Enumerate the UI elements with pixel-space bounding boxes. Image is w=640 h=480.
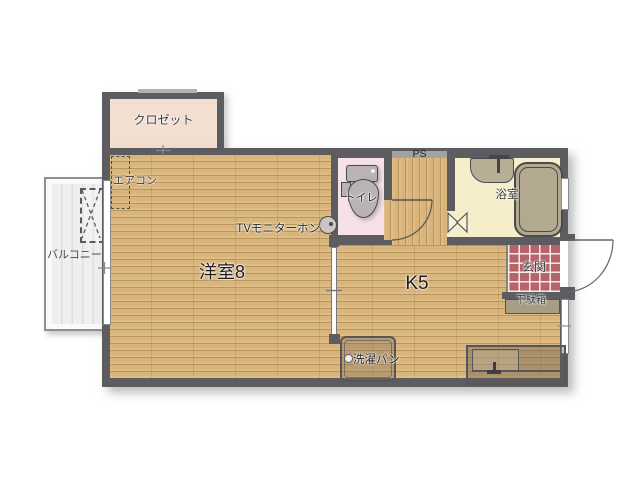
floor-plan: クロゼット エアコン バルコニー 洋室8 TVモニターホン トイレ PS 浴室 … <box>0 0 640 480</box>
kitchen-counter-front-line <box>472 370 564 372</box>
toilet-label: トイレ <box>338 189 384 205</box>
bathroom-label: 浴室 <box>477 186 537 202</box>
hallway-floor <box>392 158 447 245</box>
closet-label: クロゼット <box>110 111 217 128</box>
kitchen-faucet-base <box>487 370 501 374</box>
sink-faucet-stem <box>497 159 500 173</box>
balcony-label: バルコニー <box>47 246 102 262</box>
laundry-faucet-dot <box>344 354 353 363</box>
shoe-cabinet-label: 下駄箱 <box>502 291 560 306</box>
toilet-door-opening <box>384 200 392 240</box>
closet-window-bar <box>138 89 197 93</box>
toilet-tank-button <box>371 169 375 173</box>
pipe-space-label: PS <box>392 148 447 160</box>
bathroom-window <box>561 178 569 210</box>
entrance-label: 玄関 <box>508 258 560 275</box>
partition-stub-top <box>329 235 339 247</box>
kitchen-label: K5 <box>387 273 447 295</box>
aircon-label: エアコン <box>113 172 157 188</box>
entry-door-jamb-top <box>560 234 575 241</box>
western-room-label: 洋室8 <box>172 258 272 284</box>
intercom-label: TVモニターホン <box>222 220 320 236</box>
doorbell-circle-icon <box>319 216 337 234</box>
entry-door-opening <box>560 240 568 292</box>
sink-icon <box>470 158 514 183</box>
doorbell-dot <box>329 222 333 226</box>
partition-stub-bottom <box>329 334 340 344</box>
balcony-window <box>103 180 111 325</box>
laundry-pan-label: 洗濯パン <box>353 351 400 367</box>
bathroom-door-opening <box>447 211 455 237</box>
partition-door-line <box>331 247 337 337</box>
